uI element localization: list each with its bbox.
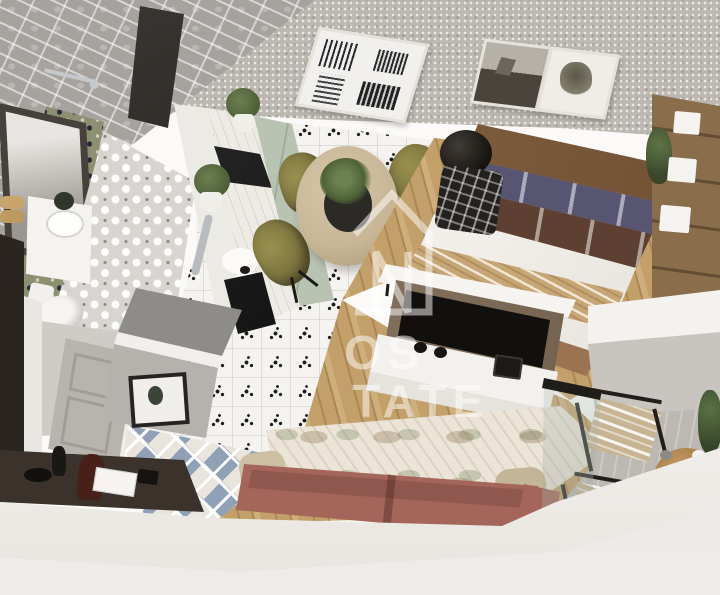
sink-basin	[46, 210, 84, 238]
gray-cup	[660, 450, 672, 460]
media-knob-decor-2	[434, 347, 447, 358]
balcony-plant	[698, 390, 720, 454]
watermark-text-line1: OS	[344, 330, 425, 378]
vanity-plant	[54, 192, 74, 210]
counter-plant-1-pot	[234, 114, 254, 132]
counter-plant-2-pot	[200, 192, 222, 212]
media-tablet-decor	[493, 354, 524, 380]
sink-drain	[240, 266, 250, 274]
console-vase-decor	[52, 446, 66, 476]
storage-box-3	[659, 205, 691, 234]
towel-shelf	[0, 196, 24, 209]
storage-box-1	[673, 111, 701, 135]
abstract-wall-art	[295, 27, 430, 124]
console-bowl-decor	[24, 468, 52, 482]
console-camera-decor	[137, 469, 159, 486]
watermark-house-logo	[340, 178, 444, 318]
tree-print-icon	[560, 62, 592, 96]
storage-box-2	[667, 157, 697, 183]
watermark-text-line2: TATE	[352, 378, 489, 424]
plaid-armchair	[434, 164, 504, 236]
shower-head	[90, 80, 99, 89]
apartment-3d-floor-plan: OS TATE	[0, 0, 720, 595]
